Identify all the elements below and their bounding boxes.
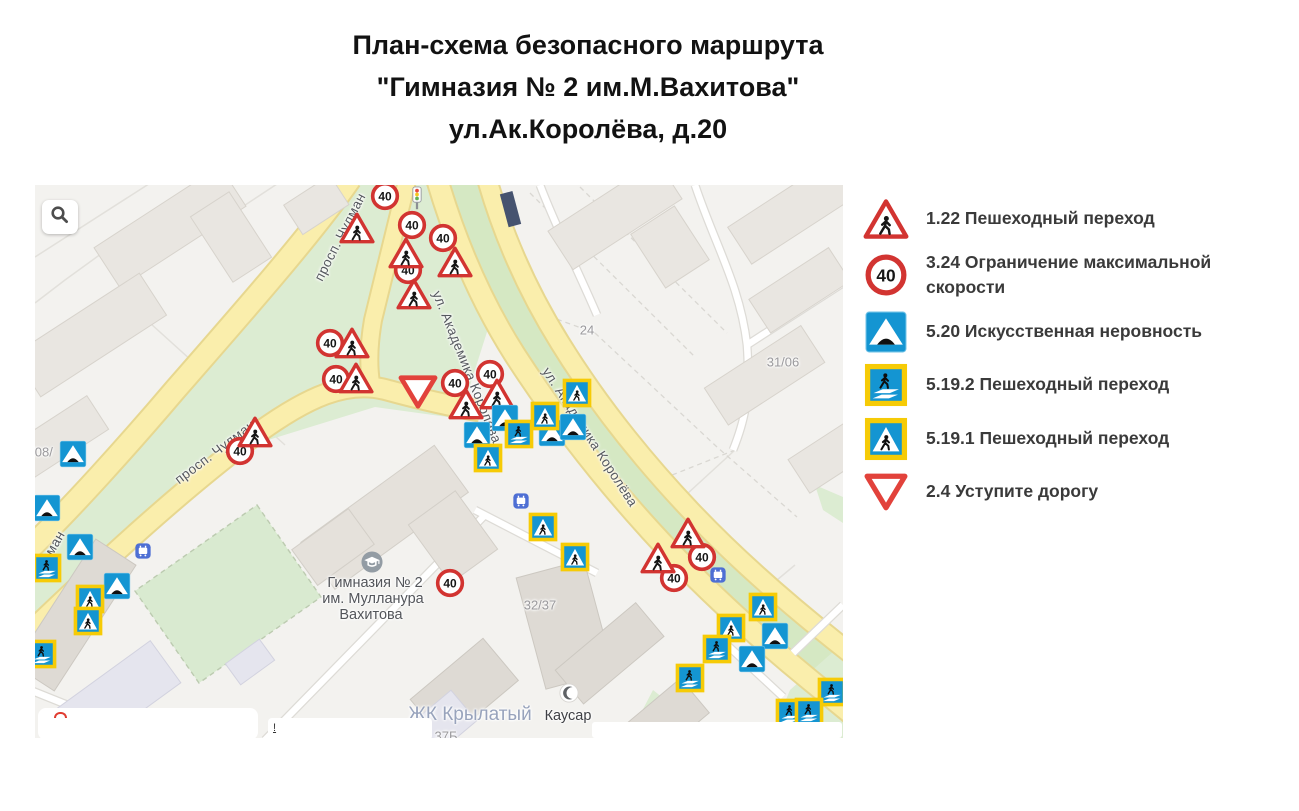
route-map: просп. Чулманпросп. Чулманманул. Академи… (35, 185, 843, 738)
title-line-3: ул.Ак.Королёва, д.20 (238, 108, 938, 150)
search-icon (49, 204, 71, 231)
legend-item: 2.4 Уступите дорогу (862, 471, 1292, 513)
map-legend: 1.22 Пешеходный переход403.24 Ограничени… (862, 198, 1292, 523)
overlay-bar (592, 722, 842, 738)
overlay-bar: ! (268, 718, 432, 738)
overlay-layer: ! (35, 185, 843, 738)
sign-5.19.1-icon (864, 417, 908, 461)
sign-3.24-icon: 40 (865, 254, 907, 296)
legend-item-label: 3.24 Ограничение максимальной скорости (926, 250, 1266, 301)
legend-item-label: 5.19.1 Пешеходный переход (926, 426, 1169, 451)
title-line-2: "Гимназия № 2 им.М.Вахитова" (238, 66, 938, 108)
sign-1.22-icon (863, 198, 909, 240)
sign-2.4-icon (864, 472, 908, 512)
sign-5.20-icon (865, 311, 907, 353)
search-button[interactable] (42, 200, 78, 234)
sign-5.19.2-icon (864, 363, 908, 407)
svg-text:40: 40 (876, 266, 895, 286)
overlay-bar (38, 708, 258, 738)
poster-title: План-схема безопасного маршрута "Гимнази… (238, 24, 938, 150)
title-line-1: План-схема безопасного маршрута (238, 24, 938, 66)
legend-item-label: 5.19.2 Пешеходный переход (926, 372, 1169, 397)
legend-item-label: 2.4 Уступите дорогу (926, 479, 1098, 504)
legend-item: 403.24 Ограничение максимальной скорости (862, 250, 1292, 301)
attribution-fragment (54, 712, 67, 718)
legend-item-label: 1.22 Пешеходный переход (926, 206, 1155, 231)
legend-item: 1.22 Пешеходный переход (862, 198, 1292, 240)
overlay-bar-text: ! (273, 722, 276, 734)
legend-item: 5.19.1 Пешеходный переход (862, 417, 1292, 461)
legend-item: 5.20 Искусственная неровность (862, 311, 1292, 353)
legend-item: 5.19.2 Пешеходный переход (862, 363, 1292, 407)
legend-item-label: 5.20 Искусственная неровность (926, 319, 1202, 344)
